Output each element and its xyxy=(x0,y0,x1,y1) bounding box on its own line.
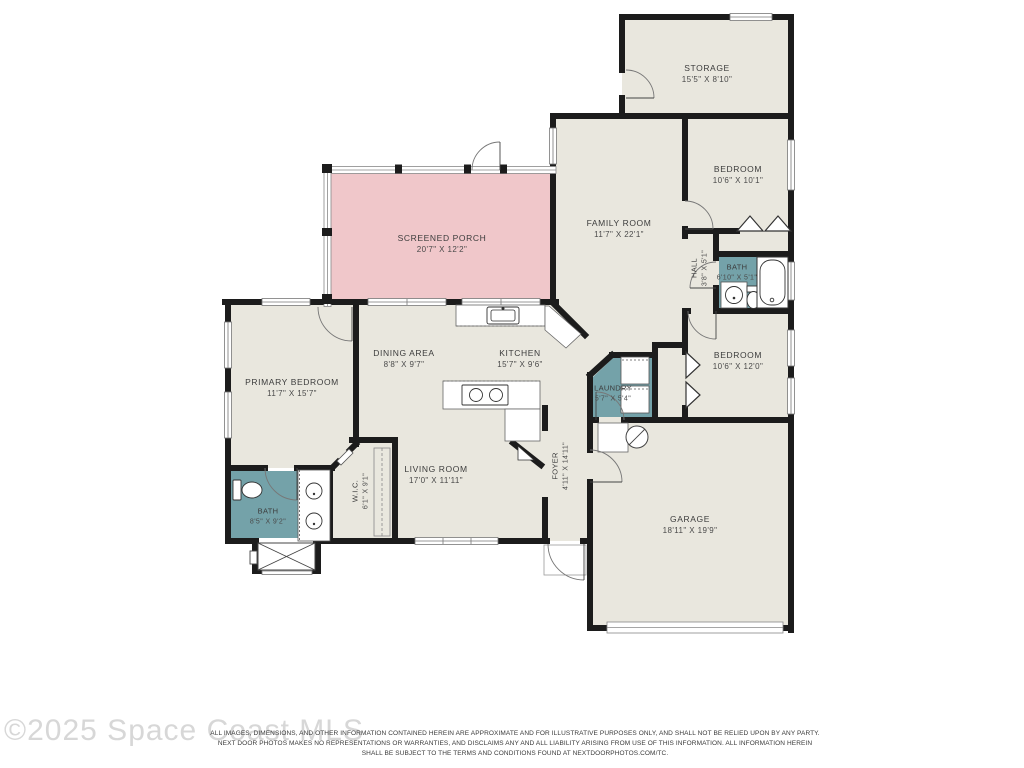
shower xyxy=(250,543,315,570)
floor-plan-drawing xyxy=(0,0,1024,768)
screened-porch-fill xyxy=(331,171,553,302)
disclaimer-line-1: ALL IMAGES, DIMENSIONS, AND OTHER INFORM… xyxy=(210,729,819,739)
garage-fixtures xyxy=(598,423,648,452)
disclaimer-line-3: SHALL BE SUBJECT TO THE TERMS AND CONDIT… xyxy=(210,749,819,759)
disclaimer-line-2: NEXT DOOR PHOTOS MAKES NO REPRESENTATION… xyxy=(210,739,819,749)
entry-stoop xyxy=(544,545,586,575)
garage-door xyxy=(607,622,783,633)
disclaimer-text: ALL IMAGES, DIMENSIONS, AND OTHER INFORM… xyxy=(210,729,819,758)
floor-plan-page: STORAGE 15'5" X 8'10" BEDROOM 10'6" X 10… xyxy=(0,0,1024,768)
